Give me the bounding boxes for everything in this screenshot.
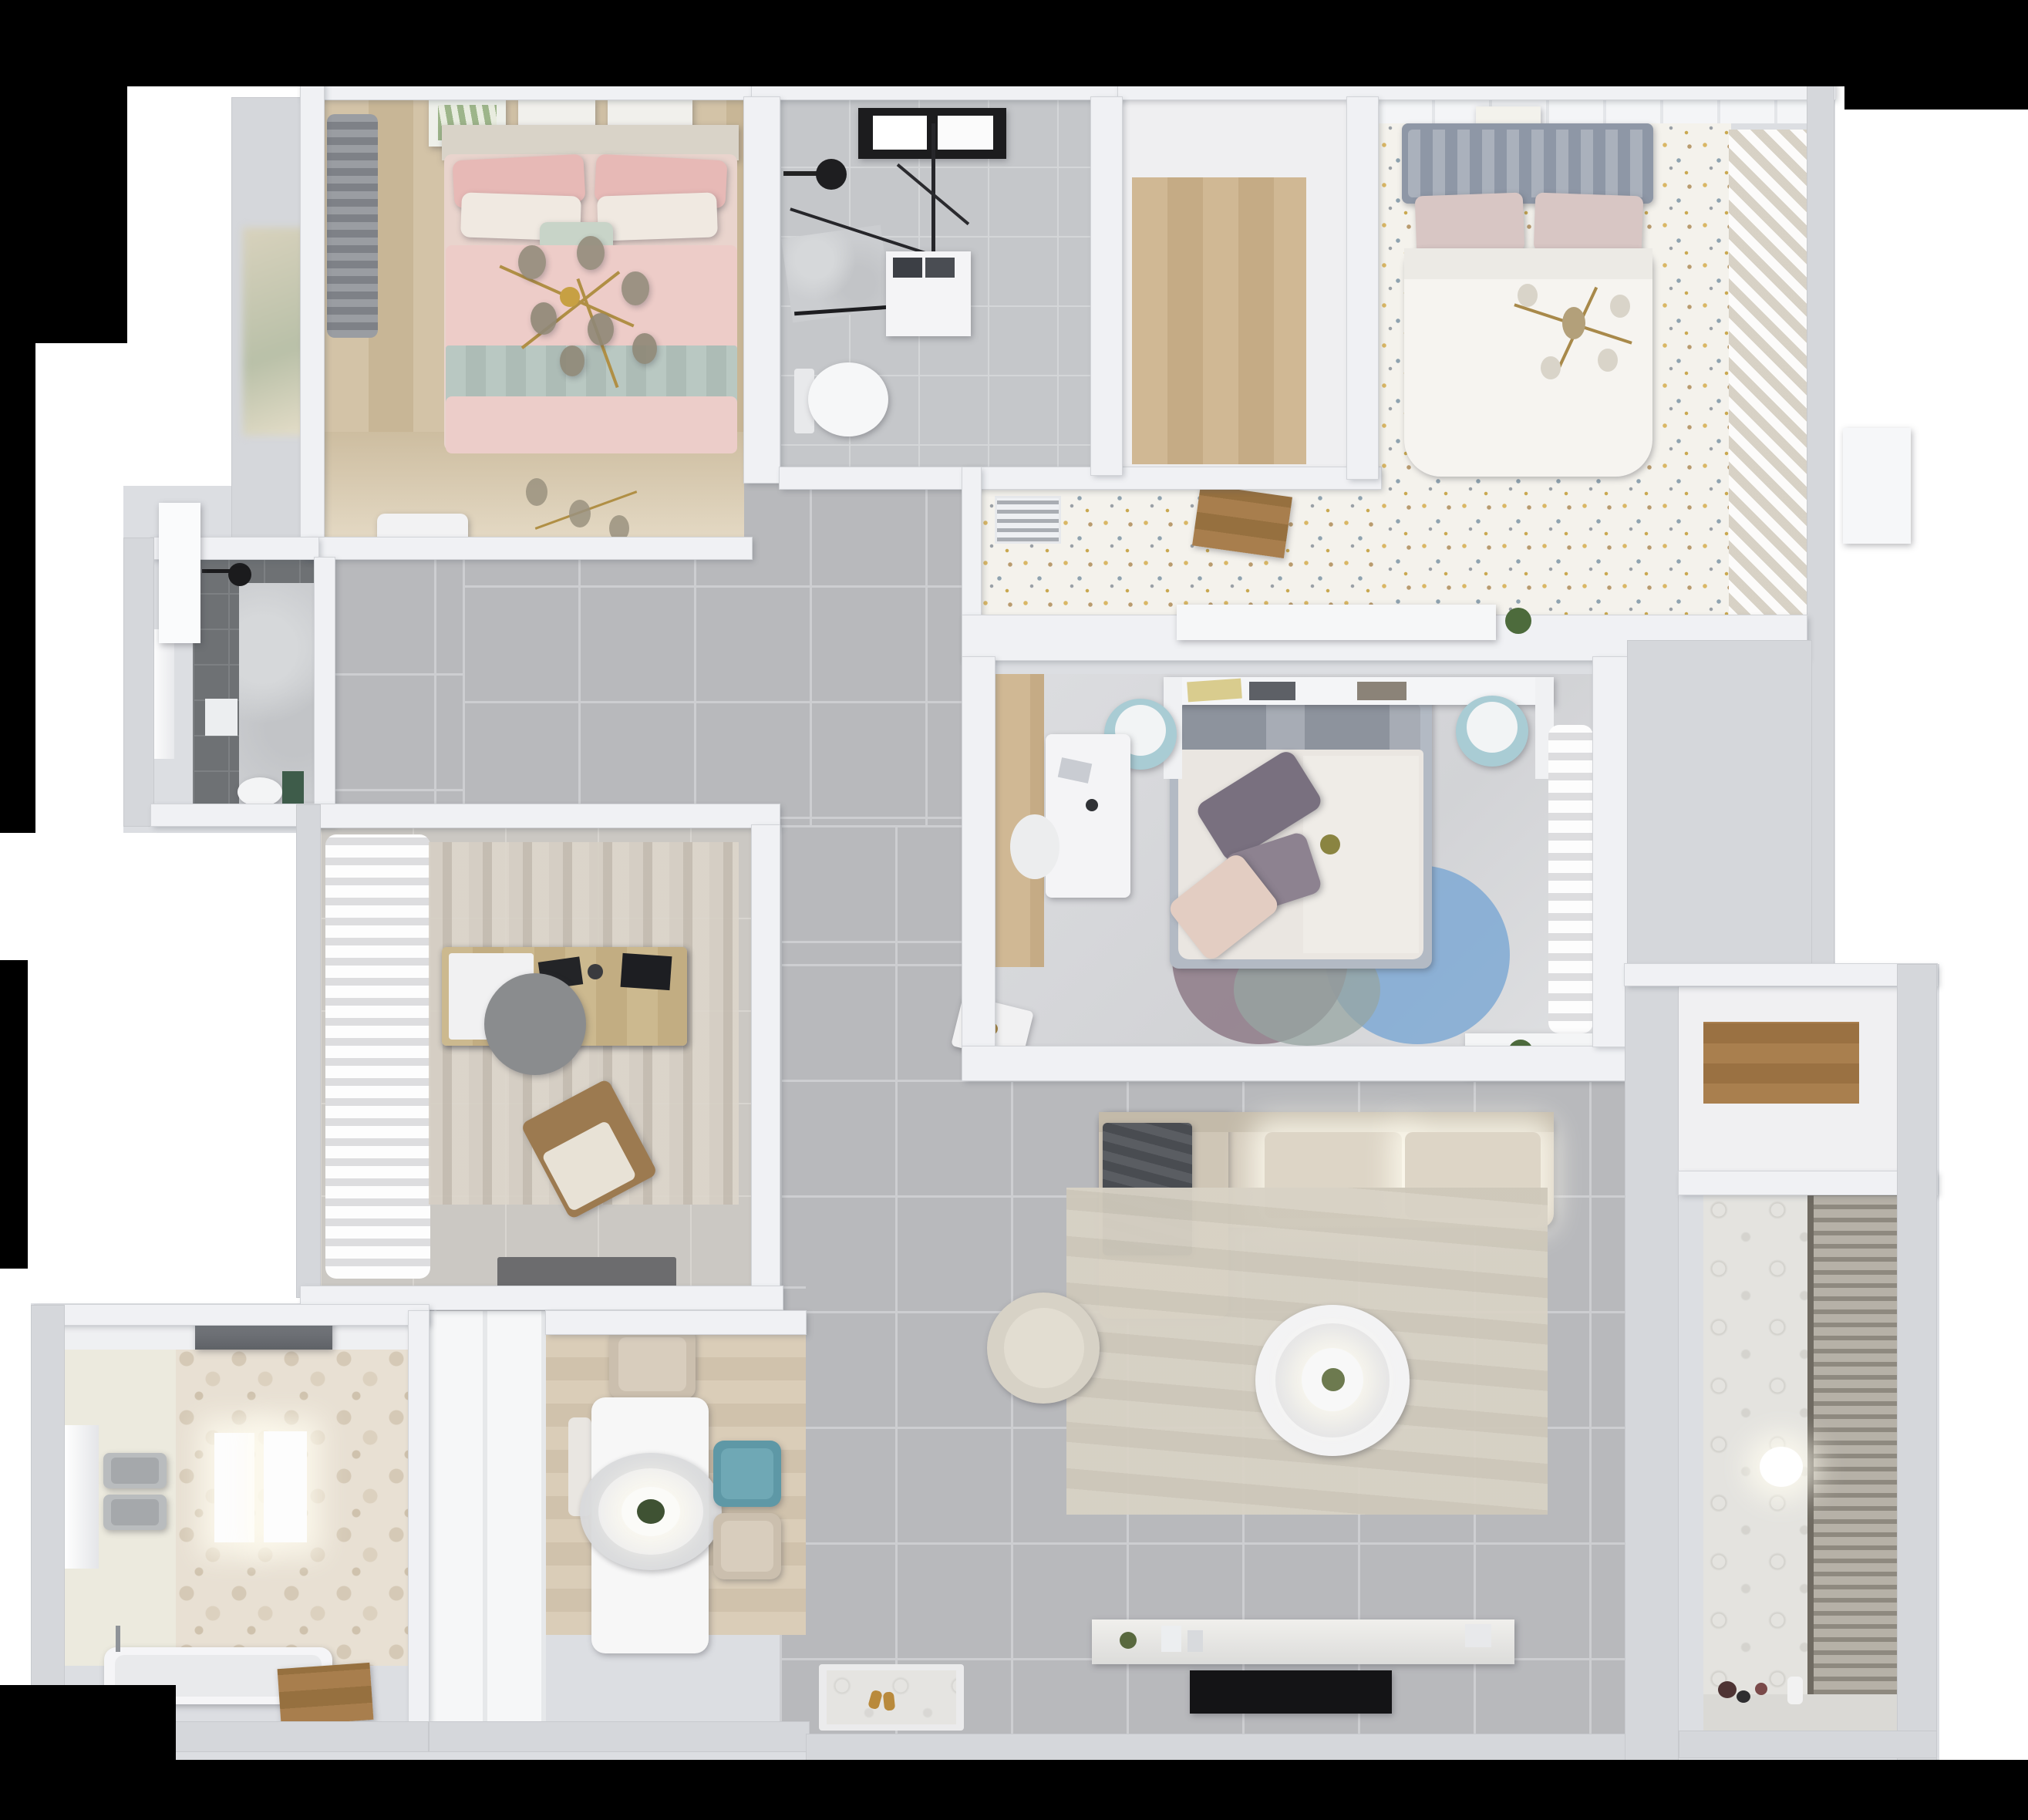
entry-shoes-2	[883, 1691, 895, 1710]
bedroom-white-ceilstrip	[1378, 97, 1807, 123]
wall-bathroom-main-south	[780, 467, 1381, 489]
bathroom-dark-window	[151, 629, 174, 759]
kids-books-1	[1187, 679, 1242, 703]
chandelier1-hub	[560, 287, 580, 307]
dining-chair-blue-seat	[721, 1448, 773, 1499]
window-outside-view	[243, 228, 306, 436]
wall-kids-west	[962, 657, 995, 1046]
chandelier1-bulb-2	[577, 236, 605, 270]
ledge-plant	[1505, 608, 1531, 634]
bed2-pillow-r	[1534, 193, 1644, 255]
kitchen-window	[65, 1425, 99, 1569]
washer-controls-1	[893, 258, 922, 278]
kids-console-ledge	[1177, 605, 1496, 640]
console-box-2	[1187, 1630, 1203, 1652]
balcony-toy-2	[1737, 1690, 1750, 1703]
bedroom-pink-curtain	[327, 114, 378, 338]
kids-books-3	[1357, 682, 1406, 700]
bg-black-midleft	[0, 960, 28, 1269]
bed2-headboard-tuft	[1408, 130, 1647, 197]
floorplan-canvas	[0, 0, 2028, 1820]
chandelier1-bulb-3	[622, 271, 649, 305]
console-box-1	[1161, 1626, 1181, 1652]
wall-bathroom-main-east	[1091, 97, 1122, 475]
bg-black-leftstrip	[0, 0, 35, 833]
door-east-white	[1843, 428, 1911, 544]
wall-south-main	[429, 1721, 810, 1752]
wall-study-west	[296, 804, 321, 1298]
balcony-bottle	[1787, 1677, 1803, 1704]
bathroom-dark-toilet	[237, 777, 282, 807]
kitchen-faucet	[116, 1626, 120, 1652]
cloakroom-wood	[1132, 177, 1306, 464]
wall-bedroom-pink-east	[744, 97, 780, 483]
bathroom-dark-tray-green	[282, 771, 304, 805]
tv-panel	[1190, 1670, 1392, 1714]
chandelier2-bulb-4	[1598, 349, 1618, 372]
study-monitor	[621, 953, 672, 990]
bed2-duvet-fold	[1404, 248, 1652, 279]
skylight-pane-1	[873, 116, 927, 150]
kitchen-sink-1-basin	[111, 1458, 159, 1484]
chandelier1-lower-1	[526, 478, 547, 506]
wall-east-zone	[1627, 640, 1812, 964]
wall-kids-south	[962, 1046, 1627, 1080]
kids-curtain-east	[1548, 725, 1593, 1033]
wall-cloakroom-east	[1347, 97, 1378, 479]
bed1-duvet-foot	[446, 396, 737, 453]
coffee-table-plant	[1322, 1368, 1345, 1391]
bedroom-white-wardrobe	[1729, 130, 1807, 618]
chandelier1-bulb-7	[560, 345, 584, 376]
tv-console	[1092, 1619, 1514, 1664]
bed2-pillow-l	[1415, 193, 1525, 255]
dining-chair-beige-seat	[721, 1521, 773, 1572]
kitchen-door-wood	[278, 1663, 374, 1726]
balcony-motif-wall	[1703, 1195, 1807, 1694]
kitchen-sink-2-basin	[111, 1499, 159, 1525]
kids-duvet-floral	[1303, 756, 1419, 953]
kids-desk-chair	[1010, 814, 1059, 879]
kids-desk	[1046, 734, 1130, 898]
fridge-cabinet-column	[429, 1311, 546, 1721]
chandelier2-bulb-3	[1541, 356, 1561, 379]
toilet-main-bowl	[808, 362, 888, 436]
door-west-white	[159, 503, 200, 643]
chandelier1-bulb-5	[588, 313, 614, 345]
study-chair-seam	[497, 986, 574, 1063]
hall-door-frame	[1192, 484, 1292, 558]
kids-books-2	[1249, 682, 1295, 700]
chandelier2-bulb-1	[1518, 284, 1538, 307]
wall-dining-north	[546, 1311, 806, 1334]
kids-desk-knob	[1086, 799, 1098, 811]
bg-black-bottom	[0, 1760, 2028, 1820]
armchair-seat	[1004, 1308, 1084, 1388]
washer-controls-2	[925, 258, 955, 278]
wall-study-east	[752, 825, 780, 1288]
wall-balcony-east	[1897, 964, 1937, 1766]
bg-black-topright	[1844, 0, 2028, 110]
bg-black-top	[0, 0, 2028, 86]
wall-balcony-south	[1679, 1731, 1937, 1758]
hall-tile-mid	[780, 825, 964, 964]
wall-bedroom-pink-south	[305, 538, 752, 559]
hall-tile-west	[318, 558, 463, 825]
wing-niche-wood	[1703, 1022, 1859, 1104]
wall-bath-dark-south	[151, 804, 318, 826]
chandelier1-bulb-4	[531, 302, 557, 335]
chandelier1-lower-2	[569, 500, 591, 527]
kitchen-wall-panel-2	[264, 1431, 307, 1542]
chandelier2-bulb-2	[1610, 295, 1630, 318]
balcony-toy-3	[1755, 1683, 1767, 1695]
console-plant	[1120, 1632, 1137, 1649]
wall-living-east	[1625, 964, 1679, 1766]
skylight-pane-2	[938, 116, 993, 150]
wall-kitchen-east	[409, 1311, 429, 1721]
study-curtains	[325, 834, 430, 1279]
balcony-blinds-edge	[1807, 1195, 1814, 1694]
chandelier1-bulb-1	[518, 245, 546, 279]
bg-black-bottomleft	[0, 1685, 176, 1820]
console-items-right	[1465, 1624, 1491, 1647]
dining-chair-top-seat	[618, 1337, 686, 1391]
wall-bath-dark-west	[123, 538, 154, 827]
shower-head	[816, 159, 847, 190]
shower2-head	[228, 563, 251, 586]
kids-ottoman-right-top	[1467, 702, 1518, 753]
study-mug	[588, 964, 603, 979]
chandelier1-bulb-6	[632, 333, 657, 364]
bed1-pillow-white-r	[597, 192, 718, 241]
wall-kids-east	[1593, 657, 1627, 1046]
balcony-lamp	[1760, 1447, 1803, 1487]
wall-west-bedroom-pink	[301, 81, 324, 559]
wall-wing-north	[1625, 964, 1937, 986]
wallpaper-vent	[995, 496, 1061, 544]
kids-duvet-dot	[1320, 834, 1340, 854]
kitchen-wall-panel-1	[214, 1433, 254, 1542]
wall-study-north	[301, 804, 780, 827]
chandelier2-hub	[1562, 307, 1585, 339]
bathroom-dark-marble	[239, 583, 318, 804]
balcony-toy-1	[1718, 1681, 1737, 1698]
wall-bath-dark-east	[315, 558, 335, 826]
balcony-blinds	[1807, 1195, 1897, 1694]
bathroom-dark-shelf	[205, 699, 237, 736]
dining-centerpiece	[637, 1499, 665, 1524]
wall-kitchen-north	[35, 1305, 429, 1325]
